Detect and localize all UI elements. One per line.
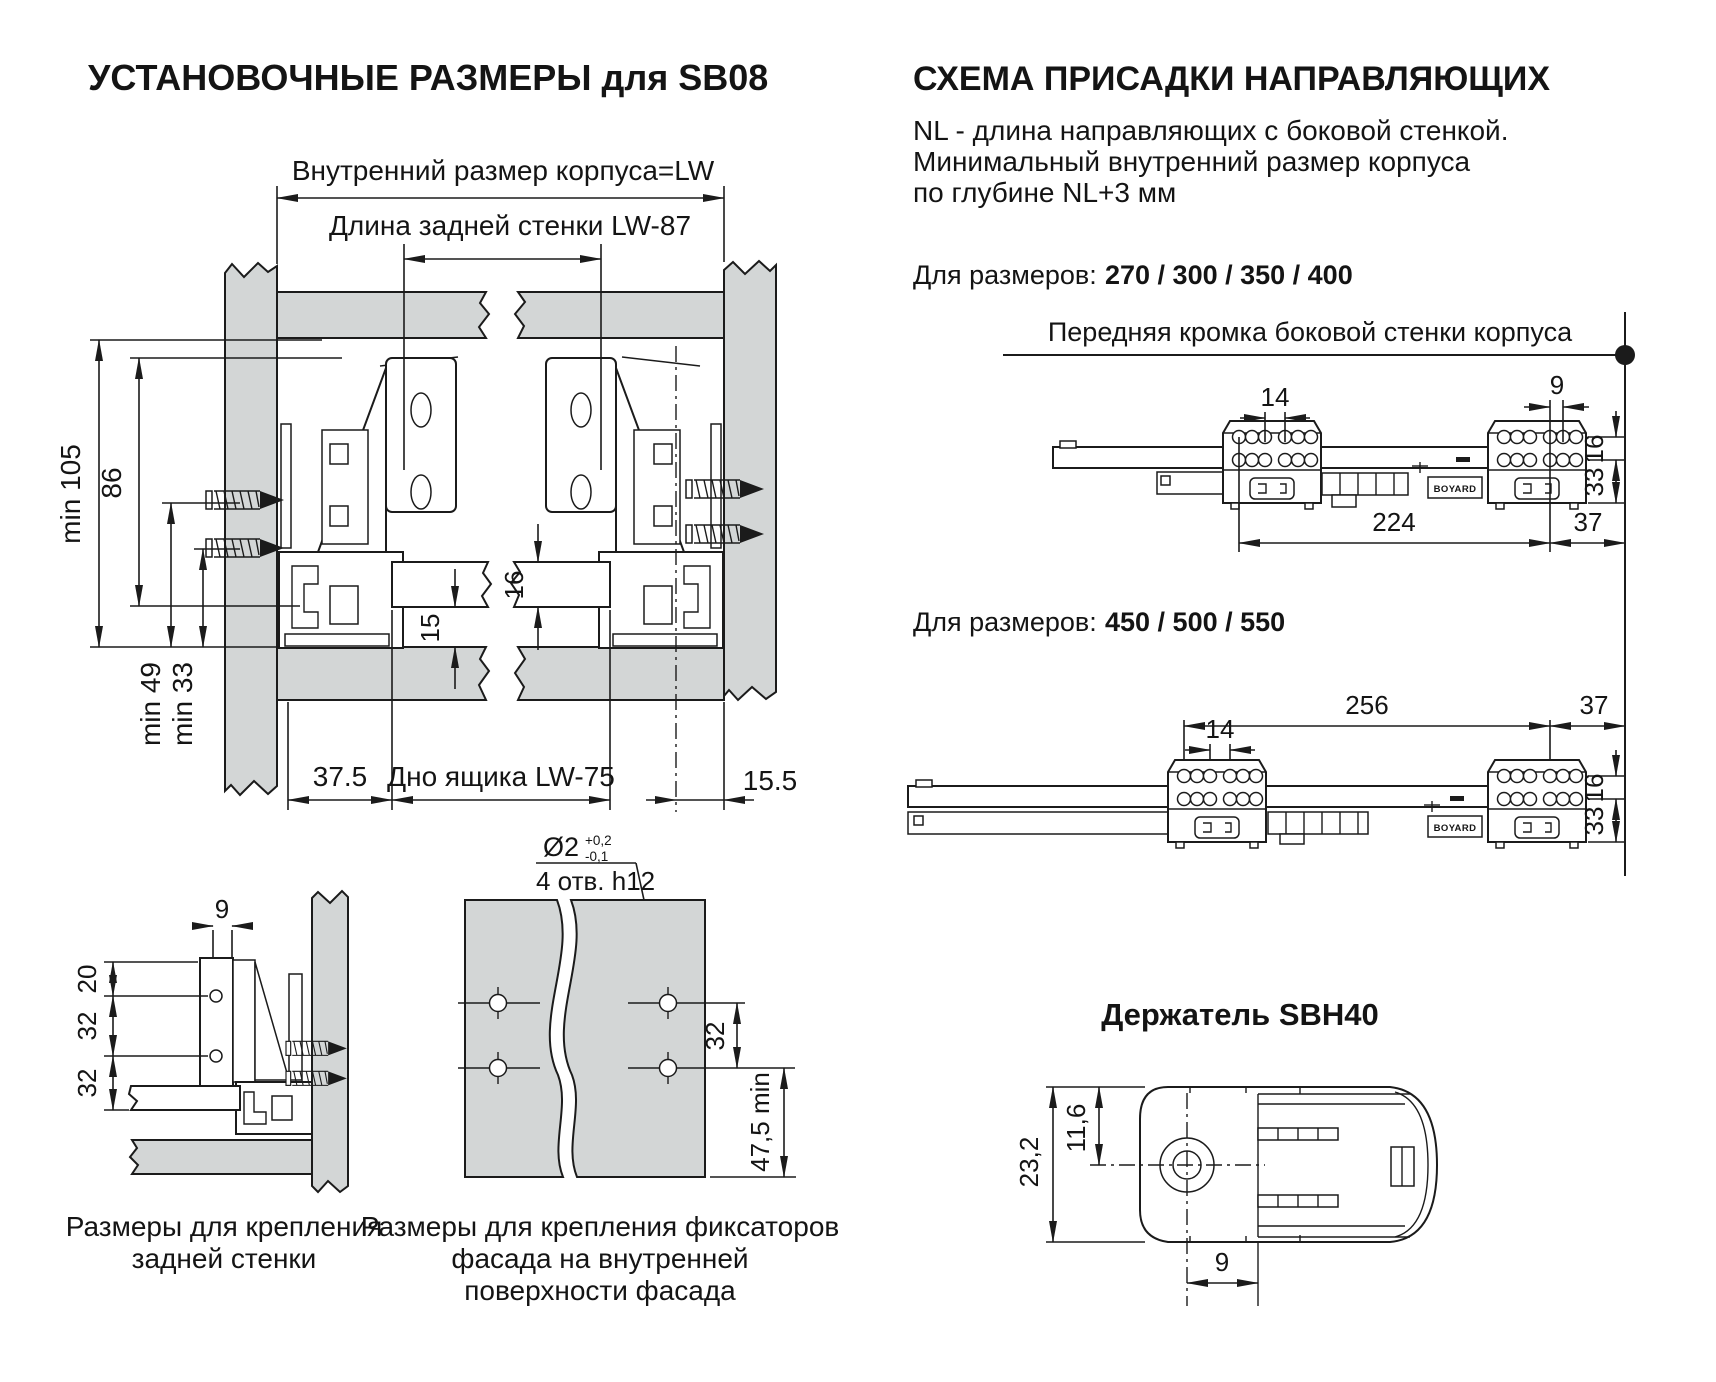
- right-section: СХЕМА ПРИСАДКИ НАПРАВЛЯЮЩИХ NL - длина н…: [908, 60, 1635, 1306]
- nl-note-2: Минимальный внутренний размер корпуса: [913, 146, 1471, 177]
- dim-min49: min 49: [135, 662, 166, 746]
- dim-32: 32: [700, 1022, 730, 1051]
- rail2-dim-14: 14: [1206, 714, 1235, 744]
- facade-caption-3: поверхности фасада: [464, 1275, 736, 1306]
- holder-dim-11-6: 11,6: [1061, 1104, 1091, 1153]
- drawer-bottom-label: Дно ящика LW-75: [387, 761, 615, 792]
- holder-dim-9: 9: [1215, 1247, 1229, 1277]
- facade-caption-2: фасада на внутренней: [451, 1243, 748, 1274]
- dim-15: 15: [415, 614, 445, 643]
- holder-sbh40-drawing: Держатель SBH40 23,2 11,6 9: [1014, 997, 1437, 1306]
- rail2-dim-37: 37: [1580, 690, 1609, 720]
- facade-caption-1: Размеры для крепления фиксаторов: [361, 1211, 840, 1242]
- back-wall-board-right: [515, 292, 724, 338]
- tolerance-minus: -0,1: [585, 849, 608, 864]
- bottom-board-right: [515, 647, 724, 700]
- main-cross-section-drawing: Внутренний размер корпуса=LW Длина задне…: [55, 155, 797, 812]
- sizes2-values: 450 / 500 / 550: [1105, 607, 1285, 637]
- mounting-block: [1168, 760, 1266, 848]
- dim-15-5: 15.5: [743, 765, 798, 796]
- facade-panel-right: [564, 900, 705, 1177]
- rail1-dim-9: 9: [1550, 370, 1564, 400]
- dim-86: 86: [96, 467, 127, 498]
- hole-diameter-label: Ø2: [543, 832, 579, 862]
- drawer-bottom-board-left: [392, 562, 491, 607]
- left-title: УСТАНОВОЧНЫЕ РАЗМЕРЫ для SB08: [88, 57, 768, 98]
- brand-logo: BOYARD: [1434, 823, 1477, 834]
- rear-detail-caption-1: Размеры для крепления: [66, 1211, 383, 1242]
- mounting-block: [1488, 421, 1586, 509]
- rail1-dim-14: 14: [1261, 382, 1290, 412]
- dim-20: 20: [72, 965, 102, 994]
- dim-9-label: 9: [215, 894, 229, 924]
- dim-37-5: 37.5: [313, 761, 368, 792]
- holes-note: 4 отв. h12: [536, 866, 655, 896]
- mounting-block: [1488, 760, 1586, 848]
- dim-min105: min 105: [55, 444, 86, 544]
- facade-fixators-detail: Ø2 +0,2 -0,1 4 отв. h12: [361, 832, 840, 1306]
- dim-min33: min 33: [167, 662, 198, 746]
- rear-wall-fixing-detail: 9 20 32: [66, 891, 383, 1274]
- rear-wall-board: [200, 958, 233, 1088]
- brand-logo: BOYARD: [1434, 484, 1477, 495]
- front-edge-label: Передняя кромка боковой стенки корпуса: [1048, 317, 1573, 347]
- nl-note-3: по глубине NL+3 мм: [913, 177, 1176, 208]
- rail1-dim-33: 33: [1579, 468, 1609, 497]
- left-section: УСТАНОВОЧНЫЕ РАЗМЕРЫ для SB08: [55, 57, 839, 1306]
- dim-32b: 32: [72, 1069, 102, 1098]
- back-wall-board-left: [277, 292, 489, 338]
- rail-drawing-450-550: 256 37 14 BOYARD 16: [908, 690, 1625, 848]
- nl-note-1: NL - длина направляющих с боковой стенко…: [913, 115, 1508, 146]
- back-wall-length-label: Длина задней стенки LW-87: [329, 210, 691, 241]
- rail1-dim-37: 37: [1574, 507, 1603, 537]
- rail1-dim-224: 224: [1372, 507, 1415, 537]
- right-title: СХЕМА ПРИСАДКИ НАПРАВЛЯЮЩИХ: [913, 60, 1550, 98]
- tolerance-plus: +0,2: [585, 833, 612, 848]
- holder-dim-23-2: 23,2: [1014, 1137, 1044, 1188]
- mounting-block: [1223, 421, 1321, 509]
- drawer-bottom-edge: [129, 1086, 240, 1110]
- dim-16: 16: [499, 571, 529, 600]
- inner-width-label: Внутренний размер корпуса=LW: [292, 155, 715, 186]
- sizes2-label: Для размеров:: [913, 607, 1097, 637]
- sizes1-label: Для размеров:: [913, 260, 1097, 290]
- rail2-dim-16: 16: [1579, 774, 1609, 803]
- bottom-gray-board: [130, 1140, 312, 1174]
- dim-32a: 32: [72, 1012, 102, 1041]
- bottom-board-left: [277, 647, 489, 700]
- technical-sheet: УСТАНОВОЧНЫЕ РАЗМЕРЫ для SB08: [0, 0, 1716, 1382]
- rail1-dim-16: 16: [1579, 435, 1609, 464]
- sizes1-values: 270 / 300 / 350 / 400: [1105, 260, 1353, 290]
- left-cabinet-wall: [225, 263, 277, 795]
- facade-panel-left: [465, 900, 563, 1177]
- rail2-dim-33: 33: [1579, 807, 1609, 836]
- rear-detail-caption-2: задней стенки: [132, 1243, 317, 1274]
- dim-47-5-min: 47,5 min: [745, 1072, 775, 1172]
- holder-title: Держатель SBH40: [1101, 997, 1379, 1032]
- rail2-dim-256: 256: [1345, 690, 1388, 720]
